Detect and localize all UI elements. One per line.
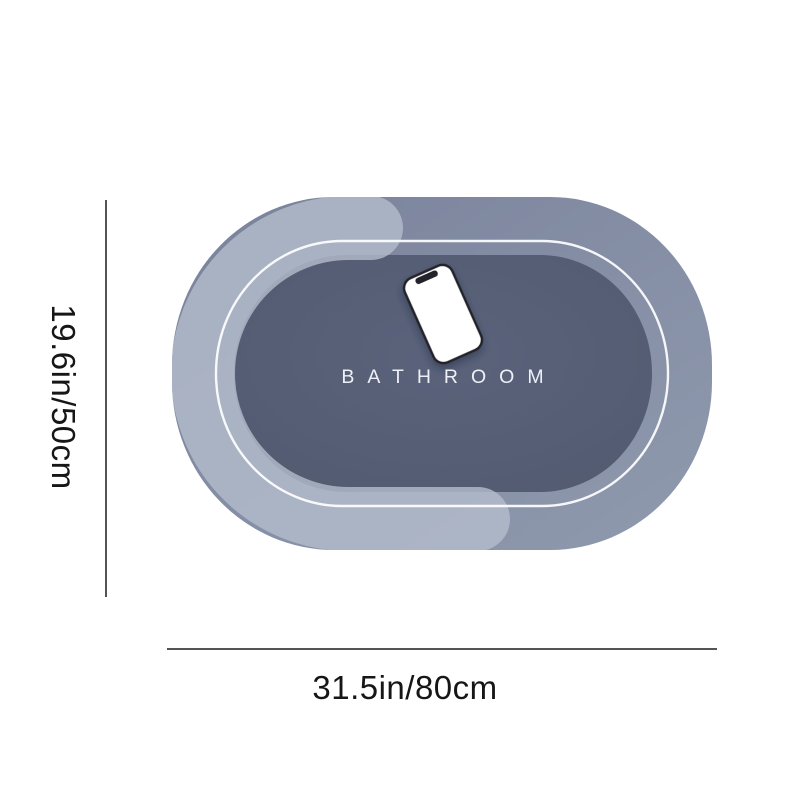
product-size-diagram: BATHROOM 19.6in/50cm 31.5in/80cm (0, 0, 800, 800)
height-dimension-label: 19.6in/50cm (41, 247, 85, 547)
mat-brand-text: BATHROOM (341, 366, 556, 388)
width-dimension-label: 31.5in/80cm (255, 666, 555, 710)
